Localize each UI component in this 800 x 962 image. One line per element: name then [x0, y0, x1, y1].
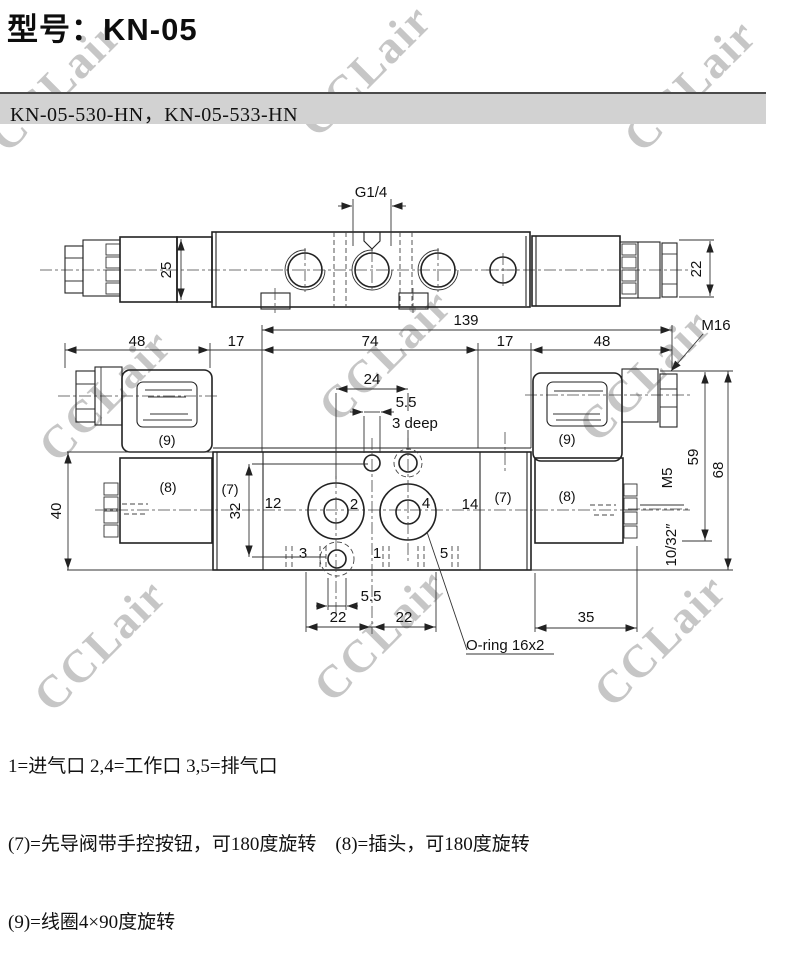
dim-48-left: 48	[129, 333, 146, 350]
dim-m16: M16	[701, 317, 730, 334]
port-4-label: 4	[422, 495, 430, 512]
port-5-label: 5	[440, 545, 448, 562]
legend-line-3: (9)=线圈4×90度旋转	[8, 910, 530, 936]
page-title: 型号：KN-05	[7, 4, 198, 49]
label-plug-right: (9)	[558, 431, 575, 447]
dim-55-bottom: 5.5	[316, 578, 381, 610]
dim-139: 139	[453, 312, 478, 329]
dim-22-right-label: 22	[396, 609, 413, 626]
label-coil-left: (8)	[159, 479, 176, 495]
depth-note-label: 3 deep	[392, 415, 438, 432]
port-3-label: 3	[299, 545, 307, 562]
label-coil-right: (8)	[558, 488, 575, 504]
dim-g14-label: G1/4	[355, 184, 388, 201]
dim-48-right: 48	[594, 333, 611, 350]
dim-22-left-label: 22	[330, 609, 347, 626]
dim-14: 14	[462, 496, 479, 513]
dim-25-label: 25	[158, 262, 175, 279]
label-plug-left: (9)	[158, 432, 175, 448]
dim-22-top: 22	[679, 240, 714, 297]
front-view: (9) (8)	[48, 367, 733, 654]
label-pilot-right: (7)	[494, 489, 511, 505]
dim-35: 35	[535, 546, 637, 632]
connector-ribs-left	[106, 244, 120, 294]
dim-22-top-label: 22	[688, 261, 705, 278]
dim-59-label: 59	[685, 449, 702, 466]
port-2-label: 2	[350, 496, 358, 513]
dim-40: 40	[48, 452, 213, 570]
plug-right: (9)	[533, 369, 677, 461]
m5-callout: M5 10/32″	[640, 468, 684, 567]
plug-left: (9)	[76, 367, 212, 452]
legend-line-1: 1=进气口 2,4=工作口 3,5=排气口	[8, 754, 530, 780]
coil-left: (8)	[104, 458, 212, 543]
technical-drawing: G1/4 25 22	[0, 0, 800, 785]
port-1-label: 1	[373, 545, 381, 562]
connector-ribs-right	[622, 244, 636, 294]
dim-68-label: 68	[710, 462, 727, 479]
dim-24-label: 24	[364, 371, 381, 388]
legend: 1=进气口 2,4=工作口 3,5=排气口 (7)=先导阀带手控按钮，可180度…	[8, 702, 530, 962]
label-pilot-left: (7)	[221, 481, 238, 497]
dim-32-label: 32	[227, 503, 244, 520]
oring-label: O-ring 16x2	[466, 637, 544, 654]
thread-imperial-label: 10/32″	[663, 523, 680, 567]
dim-12: 12	[265, 495, 282, 512]
dim-74: 74	[362, 333, 379, 350]
dim-59-68: 59 68	[531, 371, 733, 570]
dim-17-right: 17	[497, 333, 514, 350]
port-3-circle	[328, 550, 346, 568]
dim-g14: G1/4	[338, 184, 406, 246]
dim-55-bottom-label: 5.5	[361, 588, 382, 605]
dim-32: 32	[227, 464, 368, 557]
top-view: G1/4 25 22	[40, 184, 714, 313]
dim-17-left: 17	[228, 333, 245, 350]
depth-note: 3 deep	[392, 415, 438, 447]
dim-35-label: 35	[578, 609, 595, 626]
dim-40-label: 40	[48, 503, 65, 520]
legend-line-2: (7)=先导阀带手控按钮，可180度旋转 (8)=插头，可180度旋转	[8, 832, 530, 858]
dim-55-top-label: 5.5	[396, 394, 417, 411]
m5-label: M5	[659, 468, 676, 489]
thread-tab	[364, 232, 380, 249]
